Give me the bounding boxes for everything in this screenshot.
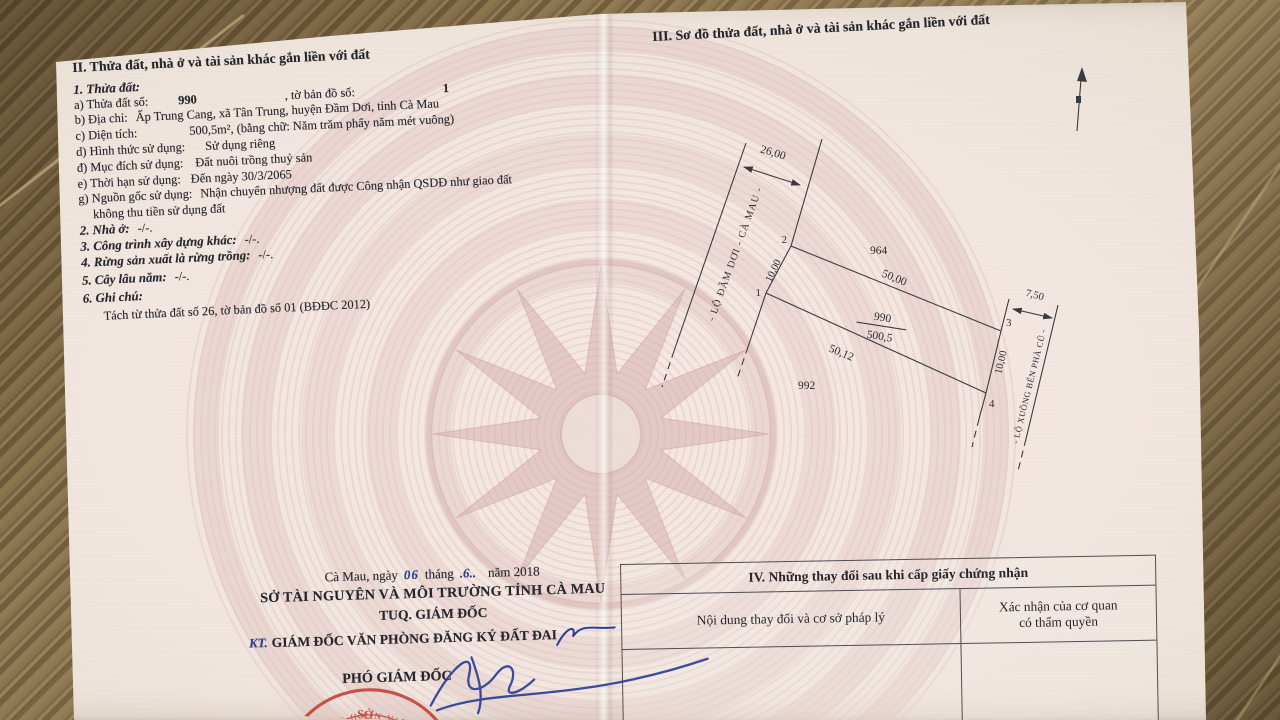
road-right-width-dimension-line bbox=[1013, 309, 1052, 318]
table-header-row: Nội dung thay đổi và cơ sở pháp lý Xác n… bbox=[622, 586, 1157, 650]
road-left-name-label: - LỘ ĐẦM DƠI - CÀ MAU - bbox=[704, 185, 765, 323]
left-edge-length-label: 10,00 bbox=[764, 258, 784, 284]
corner-3-label: 3 bbox=[1006, 317, 1012, 329]
section-3-title: III. Sơ đồ thửa đất, nhà ở và tài sản kh… bbox=[652, 13, 990, 46]
diagram-parcel-area: 500,5 bbox=[866, 329, 894, 345]
corner-1-label: 1 bbox=[756, 287, 762, 299]
top-edge-length-label: 50,00 bbox=[880, 268, 909, 289]
road-left-lines bbox=[662, 139, 822, 387]
bottom-edge-length-label: 50,12 bbox=[827, 343, 856, 364]
cadastral-diagram: 26,00 - LỘ ĐẦM DƠI - CÀ MAU - 2 1 3 4 10… bbox=[660, 55, 1150, 480]
corner-2-label: 2 bbox=[782, 234, 788, 246]
certificate-paper: II. Thửa đất, nhà ở và tài sản khác gắn … bbox=[0, 0, 1280, 720]
diagram-parcel-number: 990 bbox=[873, 311, 892, 326]
column-header-content: Nội dung thay đổi và cơ sở pháp lý bbox=[622, 589, 962, 650]
photo-land-certificate: II. Thửa đất, nhà ở và tài sản khác gắn … bbox=[0, 0, 1280, 720]
road-left-width-label: 26,00 bbox=[759, 144, 787, 163]
handwritten-month: .6.. bbox=[460, 565, 477, 580]
signature-block: Cà Mau, ngày06tháng.6..năm 2018 SỞ TÀI N… bbox=[232, 561, 635, 691]
column-header-confirmation: Xác nhận của cơ quan có thẩm quyền bbox=[960, 586, 1156, 644]
map-sheet-value: 1 bbox=[442, 81, 449, 95]
stamp-center-text: SỞ bbox=[357, 707, 375, 720]
road-right-width-label: 7,50 bbox=[1024, 288, 1044, 303]
corner-4-label: 4 bbox=[989, 398, 995, 410]
parcel-number-area-fraction: 990 500,5 bbox=[854, 308, 908, 346]
neighbor-parcel-top-label: 964 bbox=[870, 245, 888, 257]
plank-seam bbox=[1227, 549, 1280, 720]
neighbor-parcel-bottom-label: 992 bbox=[798, 380, 816, 392]
handwritten-kt: KT. bbox=[249, 635, 268, 651]
north-arrow-icon bbox=[1076, 67, 1087, 131]
handwritten-day: 06 bbox=[404, 567, 419, 582]
empty-cell-confirmation bbox=[961, 641, 1158, 720]
section-2-parcel-info: II. Thửa đất, nhà ở và tài sản khác gắn … bbox=[72, 37, 596, 326]
parcel-number-value: 990 bbox=[178, 92, 197, 107]
road-left-width-dimension-line bbox=[744, 167, 800, 185]
